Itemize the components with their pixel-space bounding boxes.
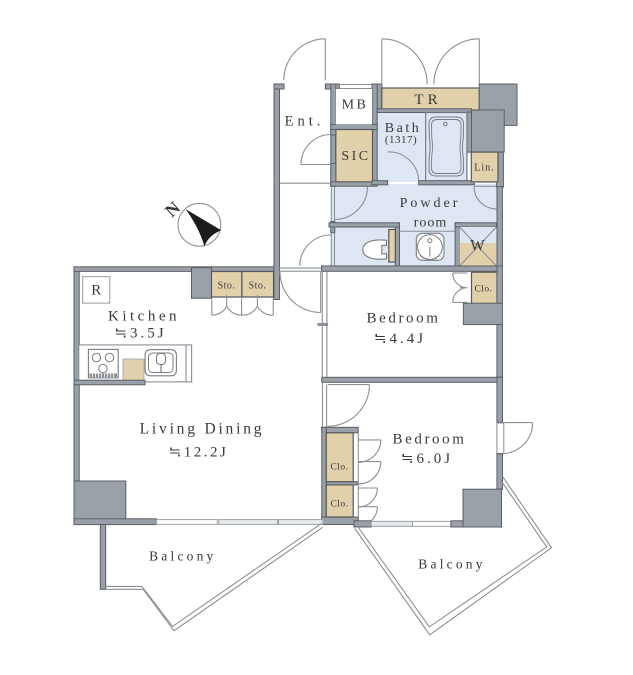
svg-text:≒3.5J: ≒3.5J [114, 326, 166, 342]
svg-text:Bedroom: Bedroom [366, 311, 440, 327]
svg-text:Powder: Powder [400, 196, 461, 211]
svg-text:≒12.2J: ≒12.2J [169, 445, 229, 461]
svg-text:Living Dining: Living Dining [140, 421, 265, 438]
svg-text:Balcony: Balcony [149, 549, 216, 564]
svg-text:≒6.0J: ≒6.0J [401, 451, 453, 467]
svg-text:TR: TR [414, 92, 441, 108]
svg-text:≒4.4J: ≒4.4J [374, 331, 426, 347]
svg-text:Clo.: Clo. [474, 285, 492, 295]
svg-text:(1317): (1317) [385, 134, 417, 146]
svg-text:Clo.: Clo. [330, 500, 348, 510]
svg-text:Balcony: Balcony [418, 557, 485, 572]
svg-text:Kitchen: Kitchen [108, 309, 180, 325]
svg-text:MB: MB [342, 98, 369, 113]
svg-text:Sto.: Sto. [249, 281, 267, 292]
svg-text:room: room [414, 216, 448, 231]
svg-text:W: W [470, 238, 485, 255]
svg-text:Lin.: Lin. [474, 163, 494, 174]
svg-text:R: R [91, 283, 101, 299]
svg-text:Sto.: Sto. [218, 281, 236, 292]
svg-text:SIC: SIC [341, 149, 370, 164]
svg-text:Bedroom: Bedroom [392, 432, 466, 448]
svg-text:Clo.: Clo. [330, 463, 348, 473]
svg-text:Ent.: Ent. [285, 114, 325, 130]
